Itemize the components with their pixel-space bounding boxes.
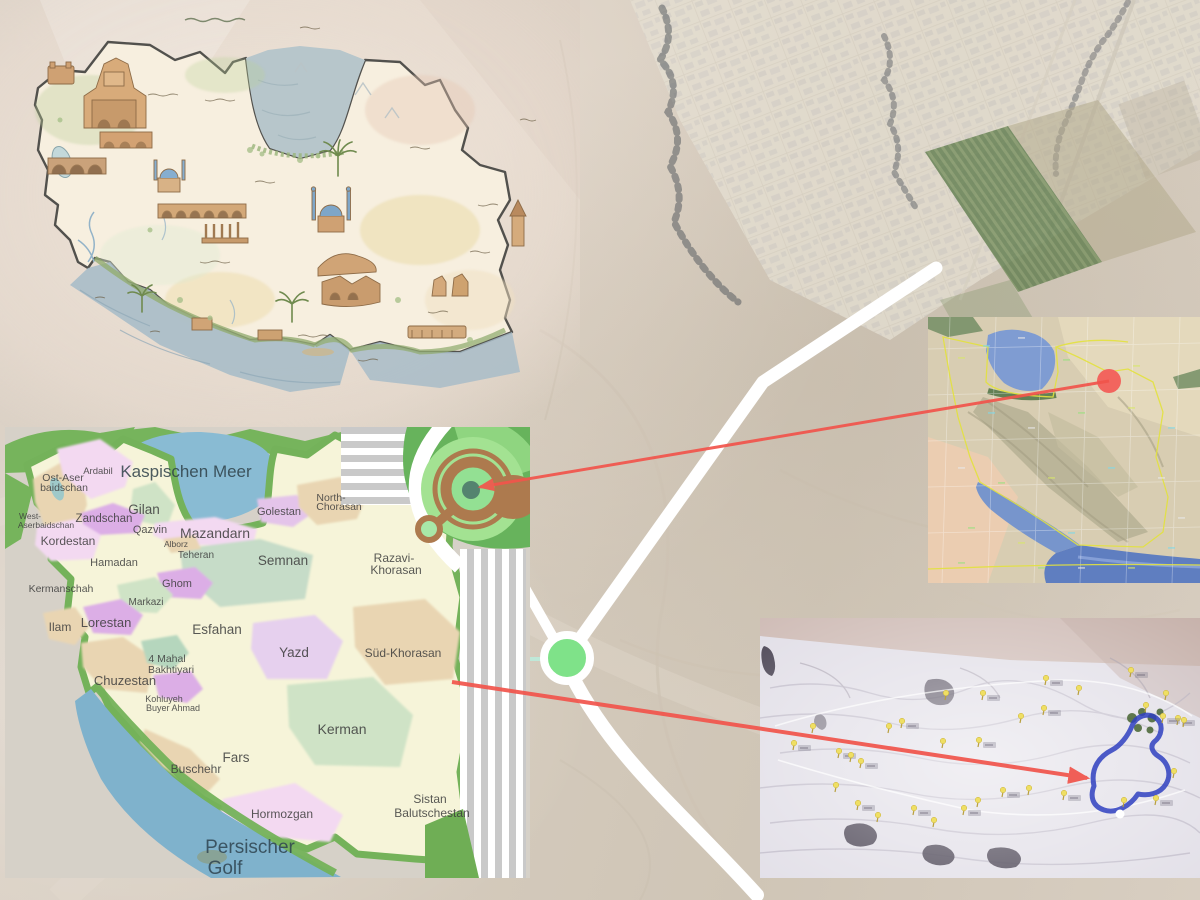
satellite-red-dot <box>1097 369 1121 393</box>
province-label: Kerman <box>317 721 366 737</box>
province-label: Kaspischen Meer <box>120 462 252 481</box>
illegible-map-label <box>998 482 1005 484</box>
illegible-map-label <box>968 527 975 529</box>
illegible-map-label <box>1018 542 1025 544</box>
province-label: Persischer <box>205 837 295 858</box>
province-label: Hormozgan <box>251 807 313 821</box>
illegible-map-label <box>1018 337 1025 339</box>
illegible-map-label <box>958 467 965 469</box>
province-label: baidschan <box>40 482 88 494</box>
illegible-map-label <box>1133 365 1140 367</box>
province-label: Chorasan <box>316 501 362 513</box>
province-label: Hamadan <box>90 557 138 569</box>
illegible-map-label <box>958 562 965 564</box>
province-label: Teheran <box>178 550 214 561</box>
satellite-iran-inset[interactable] <box>928 317 1200 583</box>
illegible-map-label <box>958 357 965 359</box>
roundabout-marker <box>544 635 590 681</box>
illegible-map-label <box>1168 427 1175 429</box>
province-label: Golestan <box>257 506 301 518</box>
province-label: Qazvin <box>133 524 167 536</box>
magnifier-center-dot <box>462 481 480 499</box>
illegible-map-label <box>1128 567 1135 569</box>
illegible-map-label <box>1168 547 1175 549</box>
illegible-map-label <box>1038 567 1045 569</box>
illegible-map-label <box>1178 517 1185 519</box>
province-label: Ilam <box>49 620 72 634</box>
site-survey-inset[interactable] <box>760 618 1200 878</box>
province-label: Mazandarn <box>180 525 250 541</box>
province-label: Khorasan <box>370 563 421 577</box>
magnifier-small-ring <box>418 518 440 540</box>
province-label: Yazd <box>279 645 309 660</box>
province-label: Golf <box>208 858 244 878</box>
illegible-map-label <box>988 412 995 414</box>
illegible-map-label <box>983 345 990 347</box>
province-label: Balutschestan <box>394 806 469 820</box>
illegible-map-label <box>1078 567 1085 569</box>
white-dot <box>1116 810 1125 819</box>
pictorial-iran-map[interactable] <box>0 0 580 430</box>
province-label: Gilan <box>128 502 160 517</box>
province-label: Lorestan <box>81 615 132 630</box>
province-label: Kordestan <box>41 534 96 548</box>
illegible-map-label <box>1078 412 1085 414</box>
province-label: Süd-Khorasan <box>365 646 442 660</box>
province-label: Ghom <box>162 578 192 590</box>
province-label: Aserbaidschan <box>18 520 75 530</box>
illegible-map-label <box>1128 407 1135 409</box>
composite-map-collage: Kaspischen MeerArdabilOst-AserbaidschanW… <box>0 0 1200 900</box>
province-label: Sistan <box>413 792 446 806</box>
province-label: Zandschan <box>76 513 133 525</box>
province-label: Semnan <box>258 553 308 568</box>
illegible-map-label <box>1048 477 1055 479</box>
illegible-map-label <box>1028 427 1035 429</box>
illegible-map-label <box>1068 532 1075 534</box>
province-label: Alborz <box>164 539 188 549</box>
province-label: Esfahan <box>192 622 242 637</box>
province-label: Markazi <box>128 597 163 608</box>
province-label: Buschehr <box>171 762 222 776</box>
illegible-map-label <box>1158 477 1165 479</box>
province-label: Chuzestan <box>94 673 156 688</box>
province-label: Kermanschah <box>29 583 94 595</box>
illegible-map-label <box>1063 359 1070 361</box>
provinces-map[interactable]: Kaspischen MeerArdabilOst-AserbaidschanW… <box>5 427 530 878</box>
province-label: Buyer Ahmad <box>146 703 200 713</box>
illegible-map-label <box>1108 467 1115 469</box>
province-label: Ardabil <box>83 466 113 477</box>
province-label: Fars <box>223 750 250 765</box>
